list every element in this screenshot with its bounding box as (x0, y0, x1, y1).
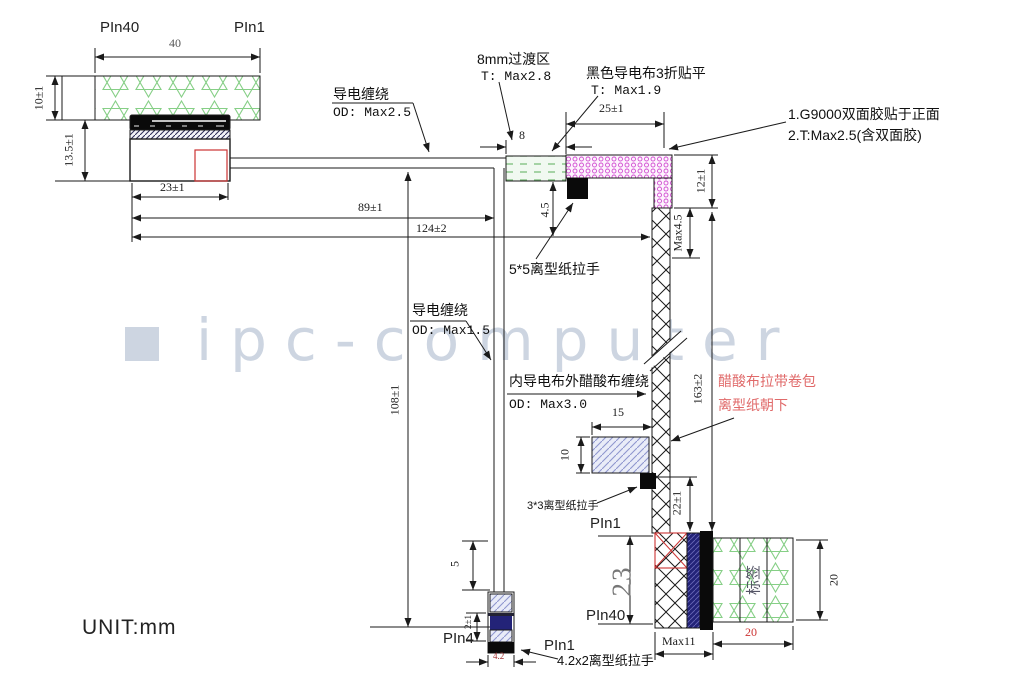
note-wrap-mid-title: 导电缠绕 (412, 300, 468, 320)
note-wrap-mid-sub: OD: Max1.5 (412, 323, 490, 338)
dim-124-2: 124±2 (416, 221, 447, 236)
dim-40: 40 (169, 36, 181, 51)
label-area-text: 标签 (743, 565, 764, 595)
dim-4-5: 4.5 (538, 203, 553, 218)
mid-elements (592, 437, 656, 489)
pin40-bottom-right-label: PIn40 (586, 607, 625, 624)
dim-max11: Max11 (662, 634, 696, 649)
pull-tab-3x3 (640, 473, 656, 489)
pin1-bottom-right-label: PIn1 (590, 515, 621, 532)
note-acetate-line1: 醋酸布拉带卷包 (718, 371, 816, 391)
top-connector-body (130, 139, 230, 181)
pin40-top-label: PIn40 (100, 19, 139, 36)
dim-8: 8 (519, 128, 525, 143)
dim-22-1: 22±1 (670, 491, 685, 516)
dim-12-1: 12±1 (694, 169, 709, 194)
dim-23-big: 23 (607, 566, 638, 597)
dim-23-1: 23±1 (160, 180, 185, 195)
dim-89-1: 89±1 (358, 200, 383, 215)
note-pull-3x3: 3*3离型纸拉手 (527, 497, 599, 513)
top-connector-bar (130, 115, 230, 130)
note-transition-title: 8mm过渡区 (477, 49, 550, 69)
pin4-bottom-label: PIn4 (443, 630, 474, 647)
dim-10-1: 10±1 (32, 86, 47, 111)
note-inner-wrap-title: 内导电布外醋酸布缠绕 (509, 371, 649, 391)
note-wrap-top-sub: OD: Max2.5 (333, 105, 411, 120)
note-pull-42x2: 4.2x2离型纸拉手 (557, 650, 654, 669)
dim-max4-5: Max4.5 (671, 215, 686, 252)
note-pull-5x5: 5*5离型纸拉手 (509, 259, 600, 279)
dim-15: 15 (612, 405, 624, 420)
drawing-canvas: ipc-computer (0, 0, 1024, 680)
bottom-right-connector (655, 531, 793, 630)
dim-4-2: 4.2 (493, 651, 504, 661)
dim-20-right: 20 (827, 574, 842, 586)
note-black-cloth-title: 黑色导电布3折贴平 (586, 63, 706, 83)
bottom-small-connector (488, 592, 514, 653)
pull-tab-5x5 (567, 178, 588, 199)
transition-zone (506, 155, 687, 533)
dim-108-1: 108±1 (388, 385, 403, 416)
dim-163-2: 163±2 (691, 374, 706, 405)
dim-5: 5 (448, 561, 463, 567)
note-black-cloth-sub: T: Max1.9 (591, 83, 661, 98)
note-transition-sub: T: Max2.8 (481, 69, 551, 84)
dim-25-1: 25±1 (599, 101, 624, 116)
dim-20-bottom: 20 (745, 625, 757, 640)
unit-label: UNIT:mm (82, 616, 177, 640)
diagram-geometry (0, 0, 1024, 680)
note-inner-wrap-sub: OD: Max3.0 (509, 397, 587, 412)
dim-10: 10 (558, 449, 573, 461)
note-wrap-top-title: 导电缠绕 (333, 84, 389, 104)
note-acetate-line2: 离型纸朝下 (718, 395, 788, 415)
note-g9000-line2: 2.T:Max2.5(含双面胶) (788, 125, 922, 145)
top-star-tape (95, 76, 260, 120)
acetate-tab-block (592, 437, 649, 473)
note-g9000-line1: 1.G9000双面胶贴于正面 (788, 104, 940, 124)
dim-2-1: 2±1 (463, 615, 473, 629)
black-cloth-band (566, 155, 672, 178)
dim-13-5: 13.5±1 (62, 133, 77, 167)
pin1-top-label: PIn1 (234, 19, 265, 36)
